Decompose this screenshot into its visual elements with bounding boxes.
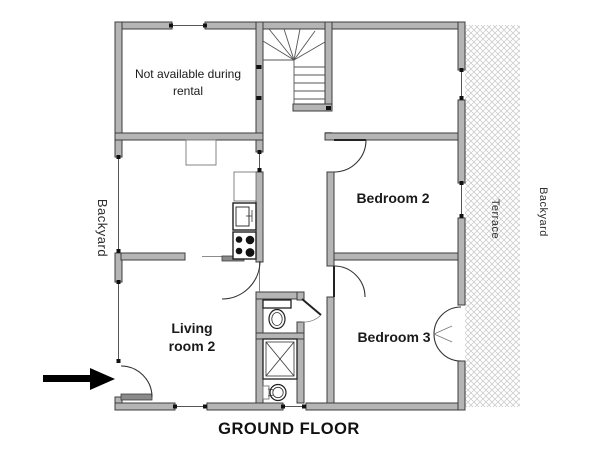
floor-plan: Not available during rental Bedroom 2 Be… bbox=[0, 0, 600, 450]
bathroom bbox=[263, 300, 297, 401]
bedroom3-door bbox=[334, 266, 365, 297]
wc-door bbox=[302, 299, 321, 322]
staircase bbox=[263, 29, 325, 104]
room-label-living-line1: Living bbox=[171, 320, 212, 336]
label-backyard-right: Backyard bbox=[537, 187, 549, 237]
window bbox=[169, 24, 207, 28]
floor-plan-svg: Not available during rental Bedroom 2 Be… bbox=[0, 0, 600, 450]
room-label-bedroom3: Bedroom 3 bbox=[357, 329, 430, 345]
room-label-bedroom2: Bedroom 2 bbox=[356, 190, 429, 206]
page-title: GROUND FLOOR bbox=[218, 420, 360, 438]
entrance-arrow bbox=[43, 368, 115, 390]
window bbox=[117, 155, 121, 253]
room-label-living-line2: room 2 bbox=[169, 338, 216, 354]
window bbox=[173, 405, 207, 409]
room-label-not-available-line1: Not available during bbox=[135, 67, 241, 81]
window bbox=[117, 280, 121, 363]
label-terrace: Terrace bbox=[489, 199, 501, 239]
kitchen-sink-icon bbox=[233, 203, 256, 230]
window bbox=[460, 68, 464, 100]
window bbox=[281, 405, 306, 409]
bedroom3-terrace-doors bbox=[434, 307, 461, 361]
stove-icon bbox=[233, 232, 256, 259]
toilet-icon bbox=[263, 300, 291, 329]
kitchen bbox=[233, 172, 256, 259]
interior-opening bbox=[258, 150, 262, 172]
room-label-not-available-line2: rental bbox=[173, 84, 203, 98]
washbasin-icon bbox=[263, 385, 286, 401]
living-room-door bbox=[222, 256, 260, 299]
chimney bbox=[186, 140, 216, 165]
shower-icon bbox=[263, 339, 297, 379]
window bbox=[460, 181, 464, 218]
entrance-door bbox=[121, 366, 152, 400]
label-backyard-left: Backyard bbox=[95, 199, 110, 257]
counter bbox=[234, 172, 256, 201]
bedroom2-door bbox=[334, 140, 366, 172]
